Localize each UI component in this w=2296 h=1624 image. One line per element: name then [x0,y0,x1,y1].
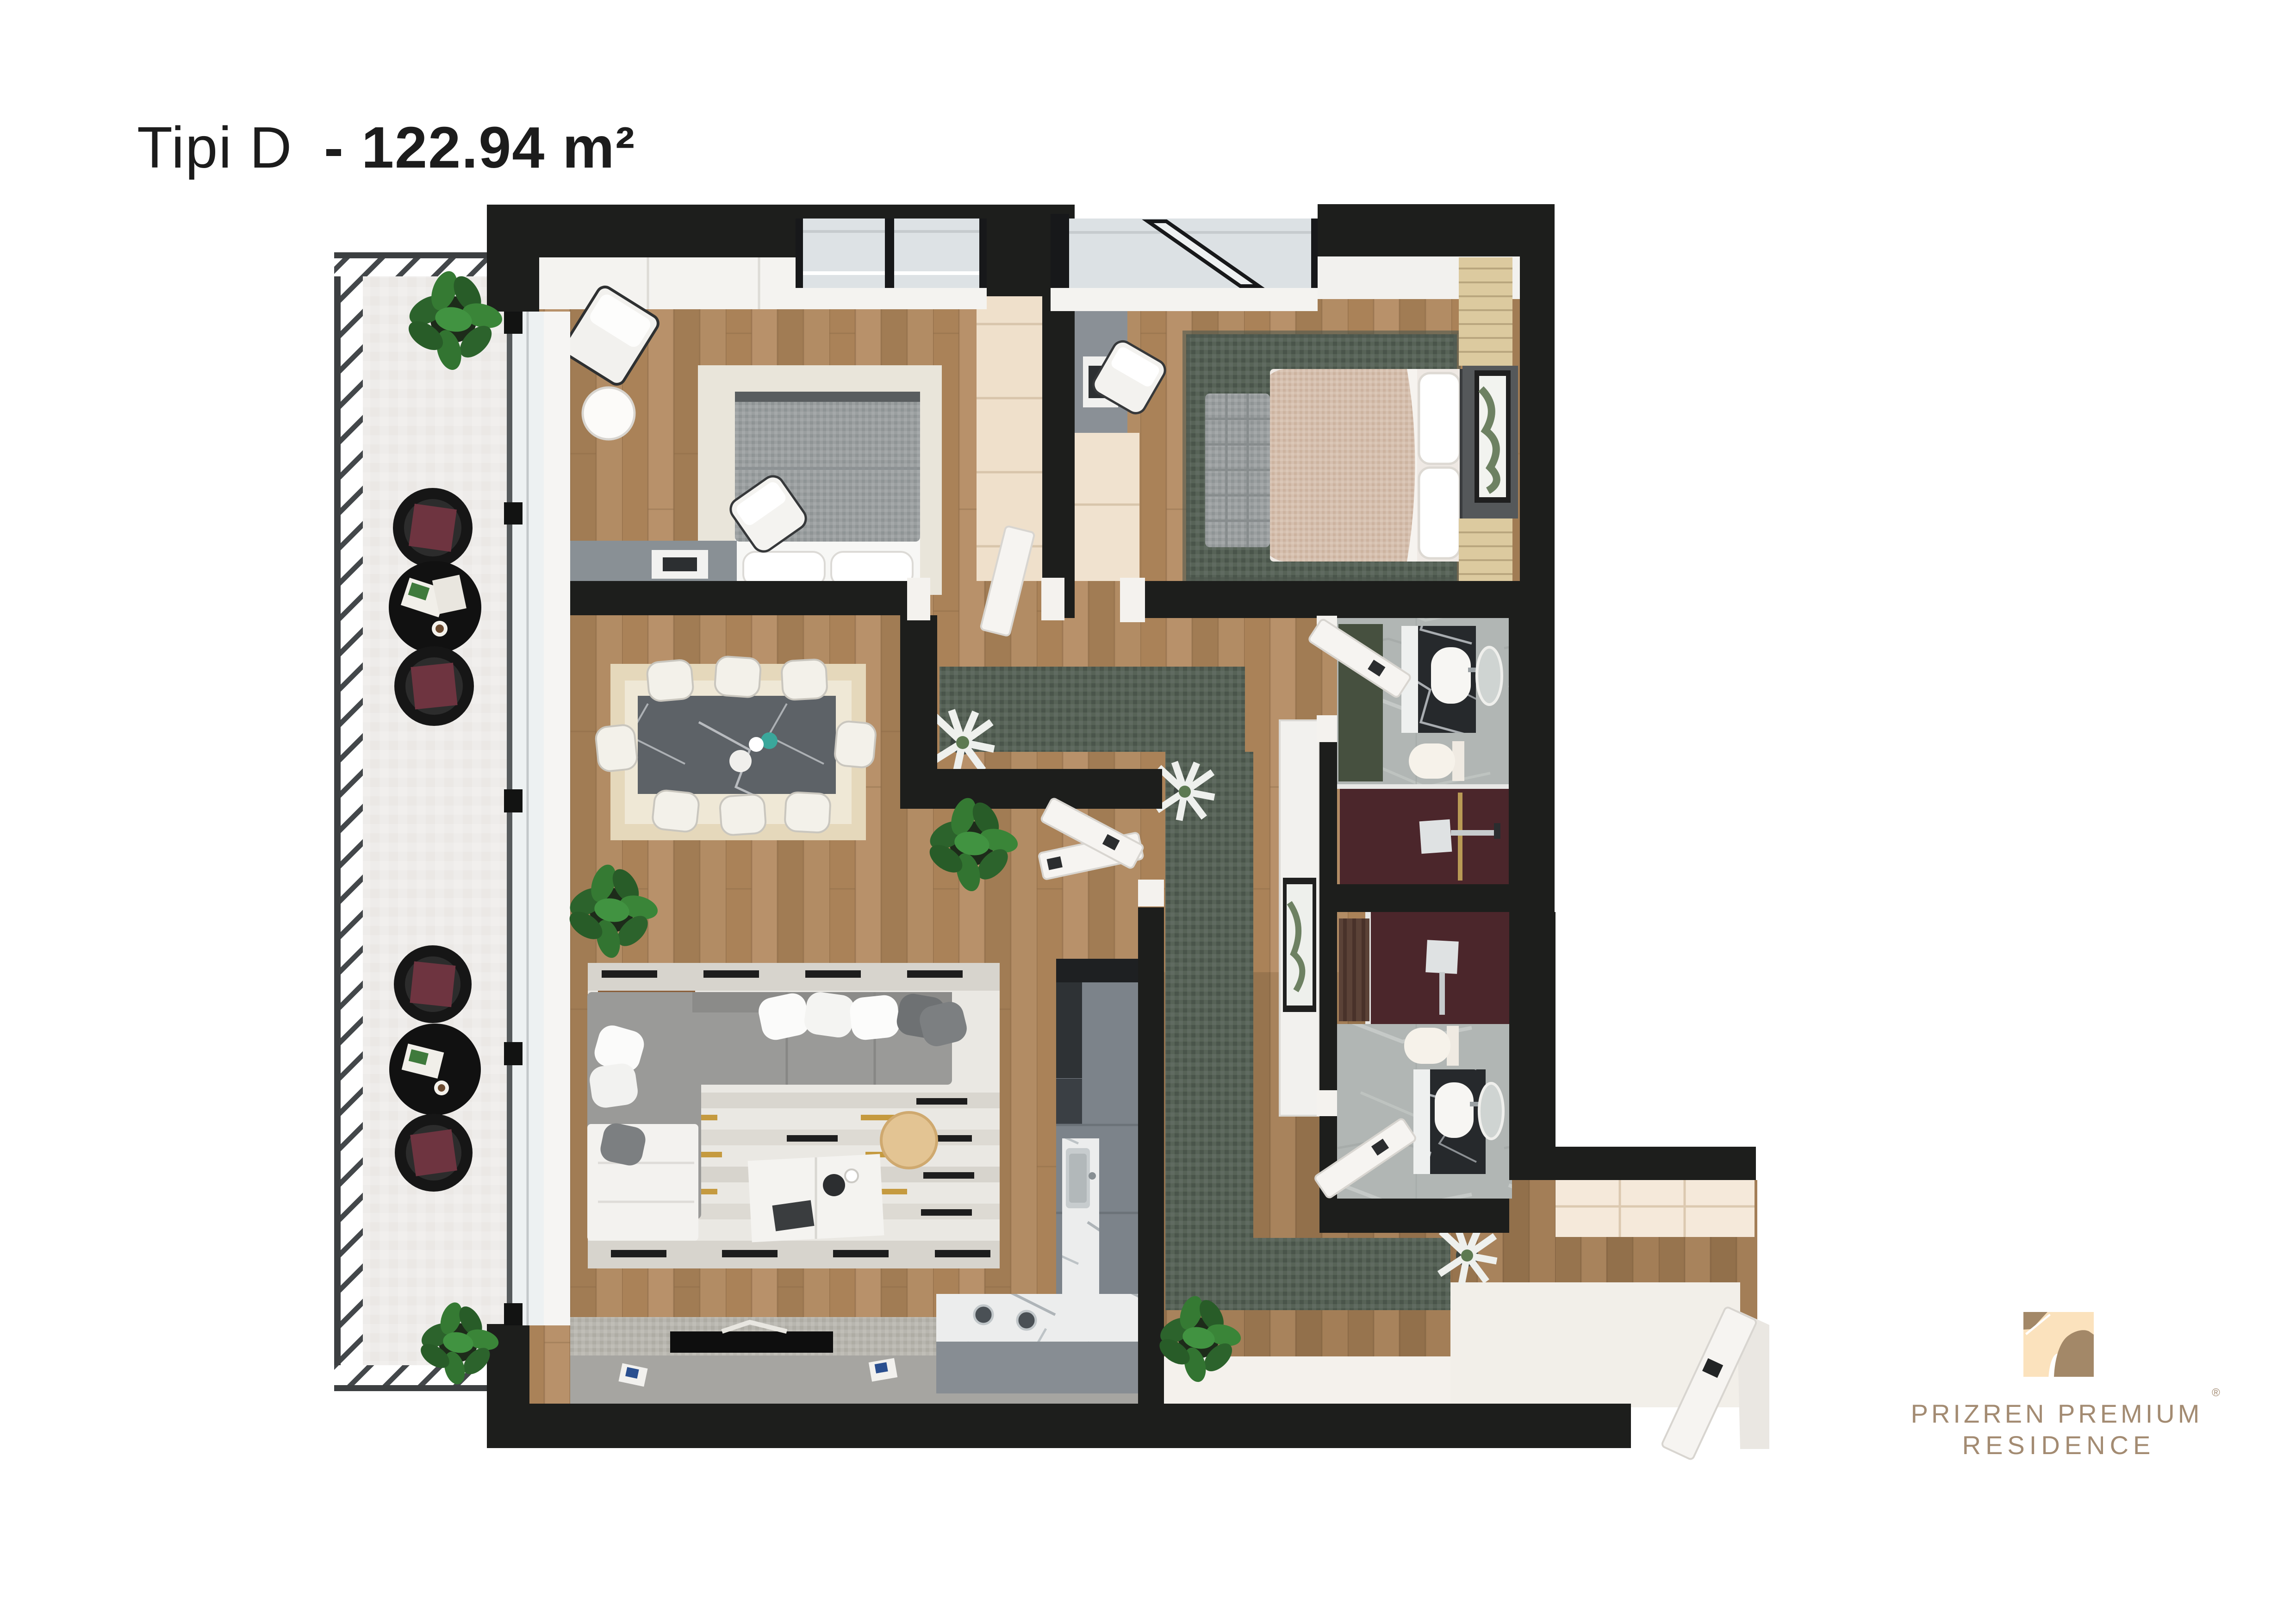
svg-text:PRIZREN PREMIUM: PRIZREN PREMIUM [1911,1399,2203,1428]
svg-text:®: ® [2212,1387,2220,1399]
svg-text:- 122.94 m²: - 122.94 m² [324,115,635,180]
svg-text:Tipi D: Tipi D [137,115,292,180]
svg-text:RESIDENCE: RESIDENCE [1962,1430,2155,1460]
